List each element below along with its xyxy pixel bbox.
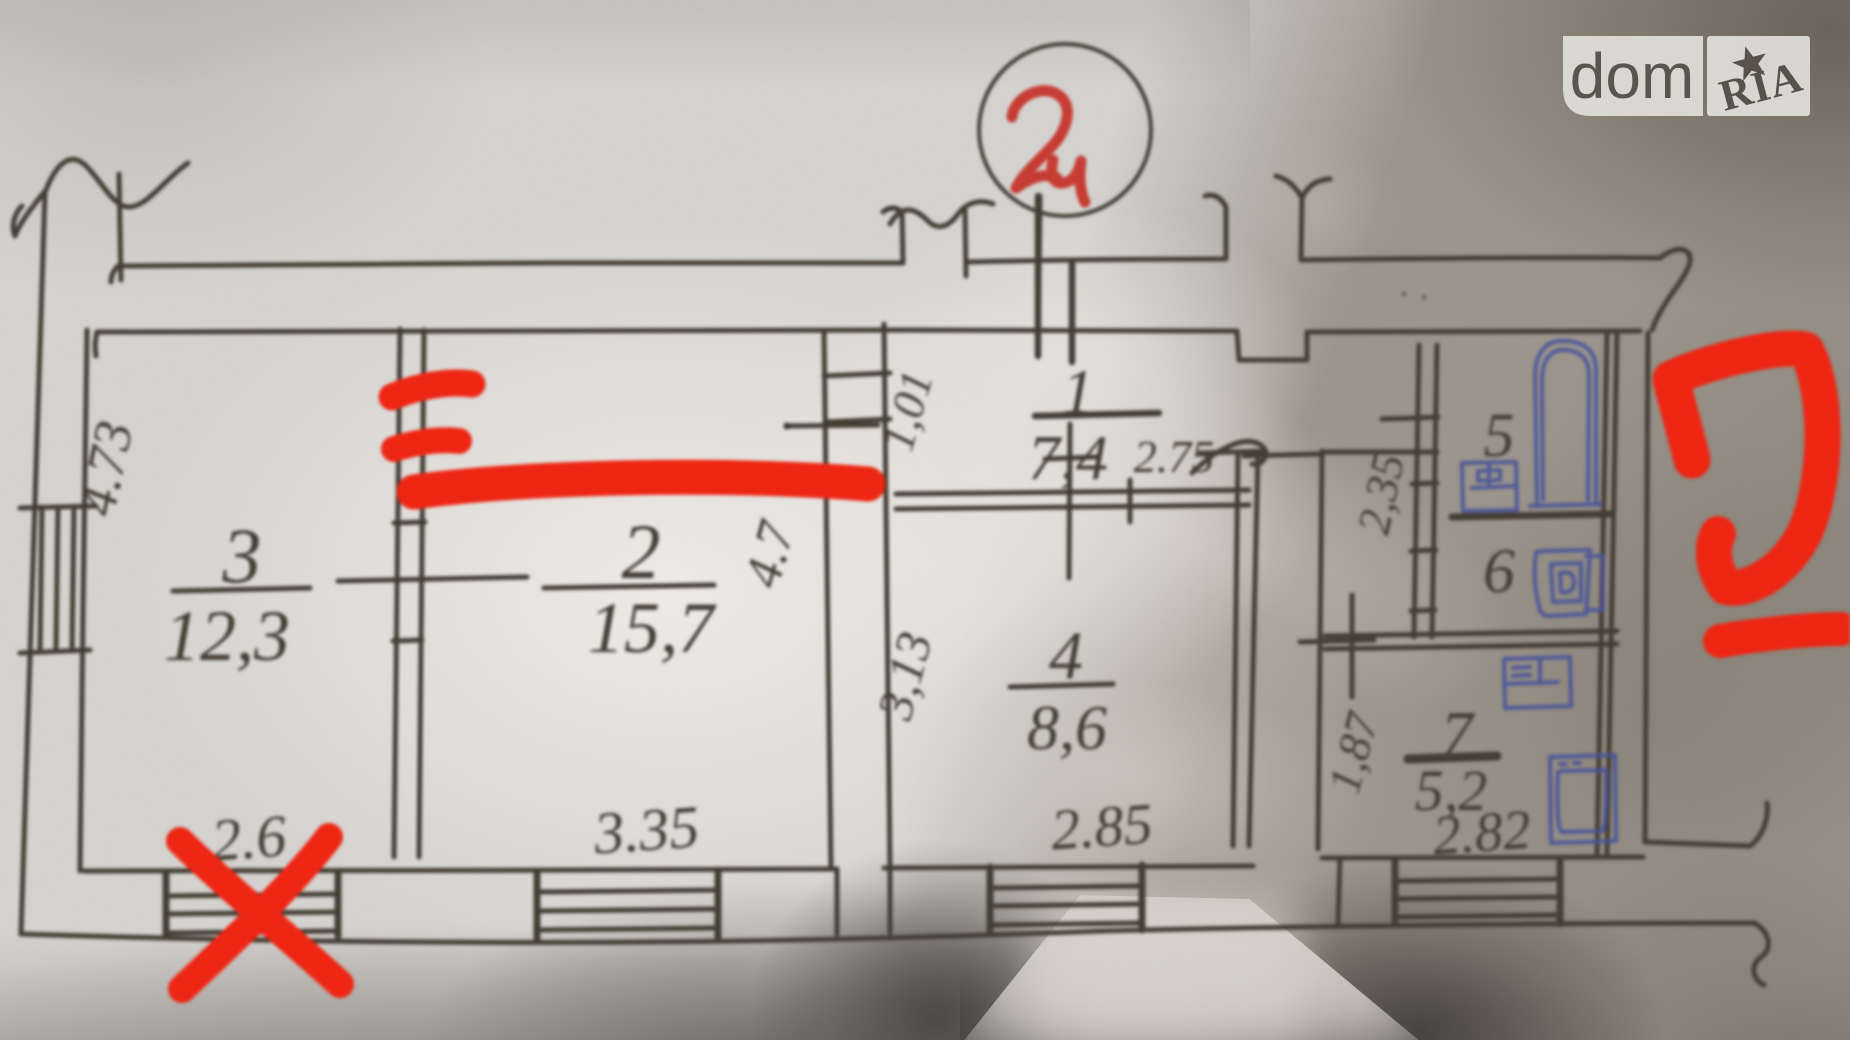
svg-text:dom: dom [1570,40,1695,112]
